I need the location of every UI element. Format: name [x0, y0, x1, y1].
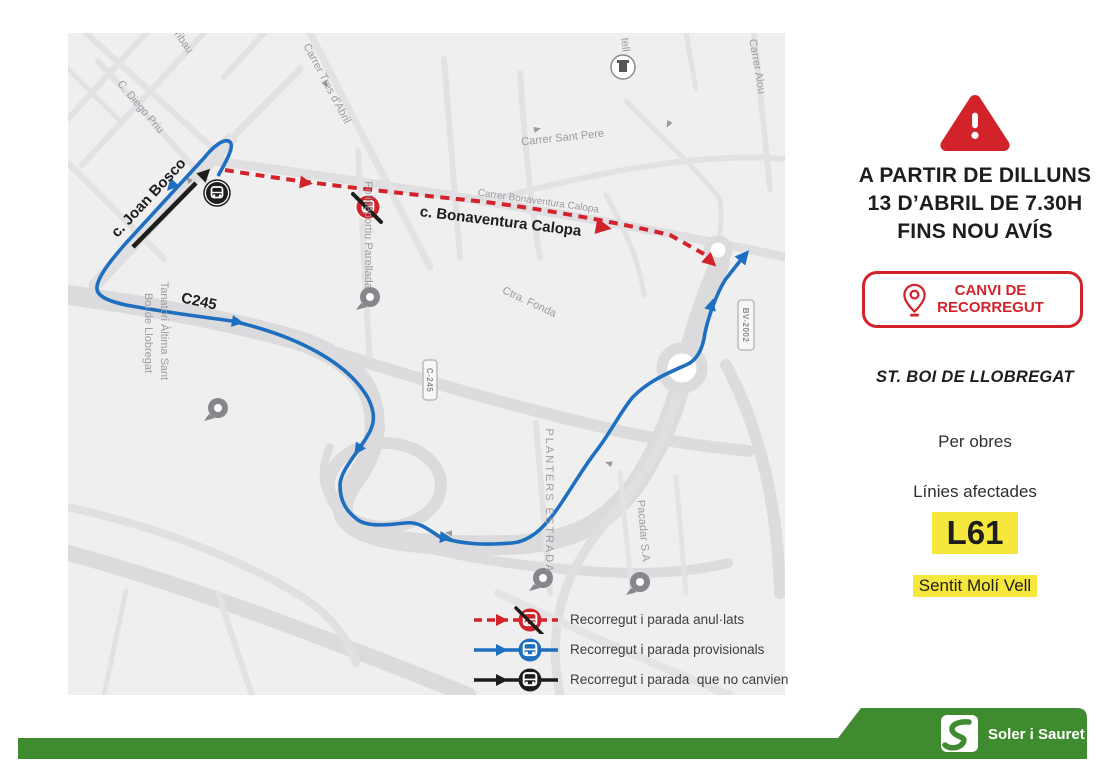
alert-title-line2: 13 D’ABRIL DE 7.30H [850, 190, 1100, 218]
cancelled-route-icon [472, 606, 560, 634]
affected-lines-label: Línies afectades [850, 482, 1100, 502]
unchanged-stop-icon [204, 180, 230, 206]
legend-label-provisional: Recorregut i parada provisionals [570, 642, 764, 657]
alert-title: A PARTIR DE DILLUNS 13 D’ABRIL DE 7.30H … [850, 162, 1100, 246]
route-map: ribau Carrer Tres d'Abril C. Diego Priu … [68, 33, 785, 695]
direction-wrap: Sentit Molí Vell [850, 575, 1100, 597]
shield-c245: C-245 [423, 360, 437, 400]
svg-text:BV-2002: BV-2002 [741, 308, 750, 343]
badge-line2: RECORREGUT [937, 300, 1044, 317]
line-code-wrap: L61 [850, 512, 1100, 554]
legend-item-cancelled: Recorregut i parada anul·lats [472, 606, 788, 633]
svg-text:C-245: C-245 [425, 368, 434, 392]
brand-logo-icon [941, 715, 978, 752]
warning-triangle-icon [939, 93, 1011, 153]
legend-item-provisional: Recorregut i parada provisionals [472, 636, 788, 663]
brand-name: Soler i Sauret [988, 726, 1085, 743]
direction-text: Sentit Molí Vell [913, 575, 1037, 597]
label-tanatori-2: Boi de Llobregat [142, 293, 154, 373]
label-planters: PLANTERS ESTRADA [543, 428, 555, 573]
alert-title-line3: FINS NOU AVÍS [850, 218, 1100, 246]
footer: Soler i Sauret [0, 708, 1103, 778]
legend-label-unchanged: Recorregut i parada que no canvien [570, 672, 788, 687]
monument-icon [611, 55, 635, 79]
badge-line1: CANVI DE [937, 283, 1044, 300]
label-castell: tell [618, 37, 631, 52]
route-change-badge: CANVI DE RECORREGUT [862, 271, 1083, 328]
map-canvas: ribau Carrer Tres d'Abril C. Diego Priu … [68, 33, 785, 695]
map-legend: Recorregut i parada anul·lats Recorregut… [472, 606, 788, 693]
shield-bv2002: BV-2002 [738, 300, 754, 350]
label-polideportiu: Polideportiu Parellada [362, 181, 374, 290]
reason-text: Per obres [850, 432, 1100, 452]
location-text: ST. BOI DE LLOBREGAT [850, 368, 1100, 387]
unchanged-route-icon [472, 666, 560, 694]
map-pin-icon [901, 282, 928, 317]
label-tanatori-1: Tanatori Àltima Sant [158, 282, 171, 380]
alert-title-line1: A PARTIR DE DILLUNS [850, 162, 1100, 190]
legend-label-cancelled: Recorregut i parada anul·lats [570, 612, 744, 627]
line-code-badge: L61 [932, 512, 1019, 554]
provisional-route-icon [472, 636, 560, 664]
badge-text: CANVI DE RECORREGUT [937, 283, 1044, 316]
legend-item-unchanged: Recorregut i parada que no canvien [472, 666, 788, 693]
